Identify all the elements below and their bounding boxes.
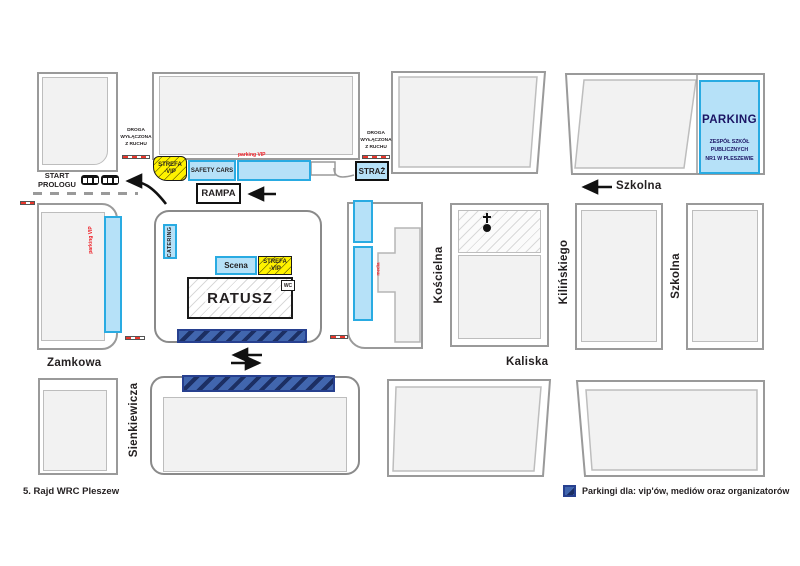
red-media-note: media [376,262,381,275]
parking-sub3: NR1 W PLESZEWIE [701,155,758,163]
catering-label: CATERING [167,226,173,257]
wc-box: WC [281,280,295,291]
barrier-icon-square-right [330,335,348,339]
rampa-box: RAMPA [196,183,241,204]
street-koscielna: Kościelna [433,246,445,303]
vip-parking-bar-1 [177,329,307,343]
ratusz-label: RATUSZ [205,290,275,307]
legend-parking-icon [563,485,576,497]
block-bottom-center-inner [163,397,347,472]
building-bottom-left-inner [43,390,107,471]
ratusz-building: RATUSZ [187,277,293,319]
road-closed-note-left: DROGA WYŁĄCZONA Z RUCHU [111,128,161,149]
parking-sub1: ZESPÓŁ SZKÓŁ [701,138,758,146]
straz-box: STRAŻ [355,161,389,181]
church-yard [458,255,541,339]
barrier-icon-square-left [125,336,145,340]
scena-box: Scena [215,256,257,275]
strefa-vip-square-box: STREFA -VIP [258,256,292,275]
safety-cars-box: SAFETY CARS [188,160,236,181]
start-prologu-label: START PROLOGU [33,171,81,189]
wc-label: WC [284,283,292,289]
parking-title: PARKING [701,114,758,126]
building-top-left-inner [42,77,108,165]
safety-cars-label: SAFETY CARS [191,168,233,174]
parking-vip-strip [237,160,311,181]
barrier-icon-zamkowa [20,201,35,205]
road-notch [311,162,335,175]
road-curve [334,168,354,177]
street-kilinskiego: Kilińskiego [558,240,570,305]
building-szkolna-east-inner [692,210,758,342]
strefa-vip-start-box: STREFA -VIP [153,156,187,181]
parking-strip-east-1 [353,200,373,243]
map-title: 5. Rajd WRC Pleszew [23,486,119,497]
church-cross-icon [479,213,495,235]
building-bottom-right-2 [577,381,764,476]
red-parking-note-top: parking VIP [238,152,266,158]
church-block [450,203,549,347]
strefa-vip-start-line1: STREFA [158,162,182,169]
rampa-label: RAMPA [201,188,235,199]
vip-parking-bar-2 [182,375,335,392]
parking-sub2: PUBLICZNYCH [701,146,758,154]
parking-strip-west [104,216,122,333]
school-parking-box: PARKING ZESPÓŁ SZKÓŁ PUBLICZNYCH NR1 W P… [699,80,760,174]
building-bottom-left [38,378,118,475]
building-top-left [37,72,118,172]
road-closed-note-right: DROGA WYŁĄCZONA Z RUCHU [351,131,401,152]
barrier-icon-left [122,155,150,159]
building-bottom-right-1 [388,380,550,476]
scena-label: Scena [224,261,248,270]
red-parking-note-left: parking VIP [88,226,94,254]
rally-car-icon [101,175,119,185]
rally-event-map: SAFETY CARS parking VIP STRAŻ parking VI… [0,0,800,566]
street-zamkowa: Zamkowa [47,357,102,369]
street-szkolna-right: Szkolna [670,253,682,299]
street-kaliska: Kaliska [506,356,548,368]
legend: Parkingi dla: vip'ów, mediów oraz organi… [563,485,789,497]
street-szkolna-top: Szkolna [616,180,662,192]
building-szkolna-east [686,203,764,350]
parking-strip-east-2 [353,246,373,321]
street-sienkiewicza: Sienkiewicza [128,383,140,458]
building-kilinskiego-inner [581,210,657,342]
building-top-right [392,72,545,173]
strefa-vip-line2: -VIP [263,266,287,273]
rally-car-icon [81,175,99,185]
legend-text: Parkingi dla: vip'ów, mediów oraz organi… [582,486,789,496]
building-top-center-inner [159,76,353,155]
strefa-vip-line1: STREFA [263,259,287,266]
church-hatched-area [458,210,541,253]
start-line-dashes [33,192,138,195]
block-west-inner [41,212,105,341]
straz-label: STRAŻ [359,167,386,176]
strefa-vip-start-line2: -VIP [158,169,182,176]
building-top-center [152,72,360,160]
building-kilinskiego [575,203,663,350]
barrier-icon-right [362,155,390,159]
